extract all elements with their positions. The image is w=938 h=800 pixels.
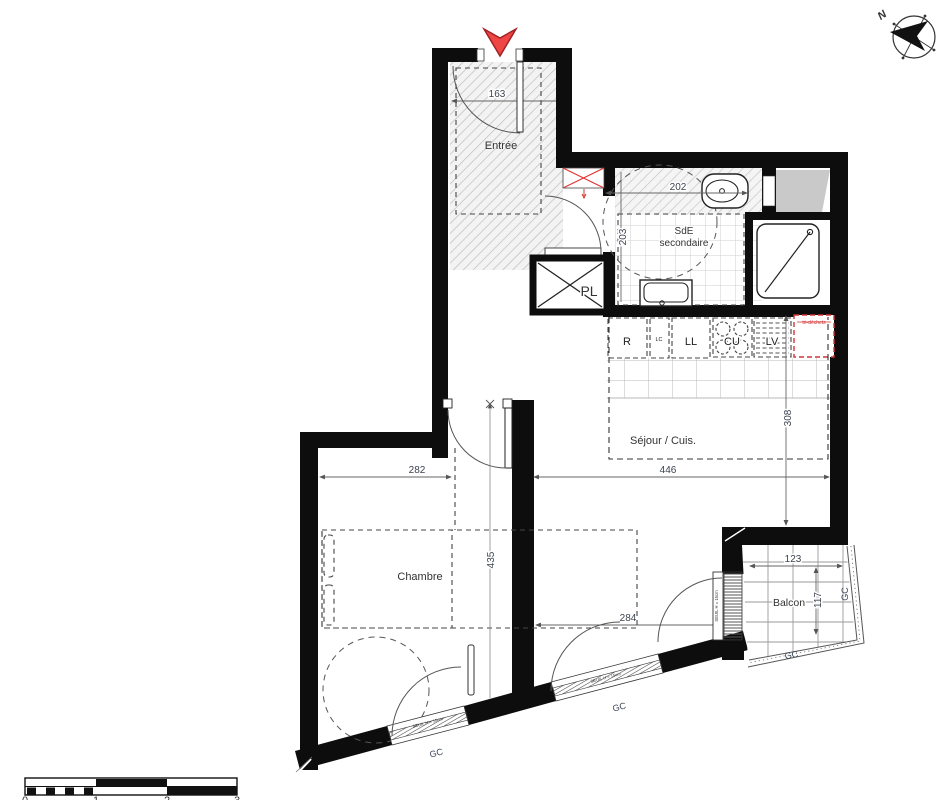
wall-balcon-left-up: [722, 545, 744, 574]
scale-bar: 0 1 2 3: [22, 778, 240, 800]
compass-north-label: N: [876, 8, 890, 23]
entree-room: 163 Entrée: [450, 29, 563, 270]
dim-123: 123: [785, 554, 802, 565]
wall-bottom-seg2: [464, 682, 556, 725]
dim-308: 308: [783, 409, 794, 426]
dishwasher-label: LV: [766, 336, 779, 348]
gc-label-sejour: GC: [611, 700, 627, 713]
gc-label-chambre: GC: [428, 746, 444, 759]
scale-tick-2: 2: [164, 795, 170, 800]
wall-entree-left: [432, 48, 448, 458]
wall-sde-top: [556, 152, 848, 168]
entree-floor-hatch: [450, 62, 563, 270]
sde-label-2: secondaire: [660, 238, 709, 249]
wall-balcon-left-dn: [722, 638, 744, 660]
scale-tick-0: 0: [22, 795, 28, 800]
reserved-shaft: [563, 168, 604, 198]
dim-435: 435: [486, 551, 497, 568]
shaft-symbol-icon: [582, 189, 586, 198]
entrance-arrow-icon: [484, 29, 516, 56]
bed-pillow-1: [324, 535, 334, 577]
sde-right-frame: [763, 176, 775, 206]
wall-chambre-left: [300, 432, 318, 770]
balcon-label: Balcon: [773, 597, 805, 609]
sink-icon: [640, 280, 692, 306]
floor-plan-page: 163 Entrée: [0, 0, 938, 800]
gc-label-balcon-bottom: GC: [784, 649, 800, 661]
dim-203: 203: [618, 228, 629, 245]
chambre-dashed-zone: [322, 530, 637, 628]
pl-closet: PL: [533, 258, 607, 312]
balcon-door-swing: [658, 578, 722, 642]
chambre-door-frame-right: [503, 399, 512, 408]
entrance-door-frame-left: [477, 49, 484, 61]
dim-282: 282: [409, 465, 426, 476]
sde-door-leaf: [545, 248, 601, 255]
chambre-label: Chambre: [397, 571, 442, 583]
entree-label: Entrée: [485, 140, 517, 152]
dim-202: 202: [670, 182, 687, 193]
scale-tick-1: 1: [93, 795, 99, 800]
sde-label-1: SdE: [675, 226, 694, 237]
chambre-door-leaf: [505, 408, 512, 468]
kitchen: tri-déchets R LC LL CU LV: [607, 315, 834, 398]
walls: [294, 48, 848, 777]
sde-door-opening: [603, 196, 615, 252]
technical-corner-shade: [776, 170, 830, 212]
balcon-door-seuil: SEUIL H = 15cm: [714, 590, 719, 622]
waste-sorting-label: tri-déchets: [802, 320, 826, 326]
dim-446: 446: [660, 465, 677, 476]
fridge-label: R: [623, 336, 631, 348]
dim-163: 163: [489, 89, 506, 100]
kitchen-floor-tiles: [607, 358, 830, 398]
scale-seg-top-black: [96, 779, 167, 787]
wall-balcon-top: [722, 527, 848, 545]
dim-117: 117: [813, 592, 824, 608]
chambre-door-frame-left: [443, 399, 452, 408]
wall-chambre-sejour: [512, 400, 534, 702]
wall-right-upper: [830, 152, 848, 312]
hob-burner-2: [734, 322, 748, 336]
hob-burner-1: [716, 322, 730, 336]
dim-284: 284: [620, 613, 637, 624]
hob-label: CU: [724, 336, 740, 348]
scale-seg-bottom-black: [167, 787, 237, 795]
floorplan-canvas: 163 Entrée: [0, 0, 938, 800]
sejour-label: Séjour / Cuis.: [630, 435, 696, 447]
entrance-door-frame-right: [516, 49, 523, 61]
chambre-door-swing: [448, 410, 506, 468]
toilet-icon: [702, 174, 748, 208]
entrance-door-leaf: [517, 62, 523, 132]
lc-label: LC: [655, 337, 662, 343]
scale-tick-3: 3: [234, 795, 240, 800]
gc-label-balcon-right: GC: [840, 587, 850, 601]
wall-chambre-top: [300, 432, 448, 448]
north-compass: N: [876, 8, 936, 60]
wall-entree-right: [556, 48, 572, 168]
radiator: [468, 645, 474, 695]
balcon-door-glazing: [724, 572, 742, 640]
pl-label: PL: [580, 283, 597, 299]
washer-label: LL: [685, 336, 697, 348]
bed-pillow-2: [324, 585, 334, 625]
